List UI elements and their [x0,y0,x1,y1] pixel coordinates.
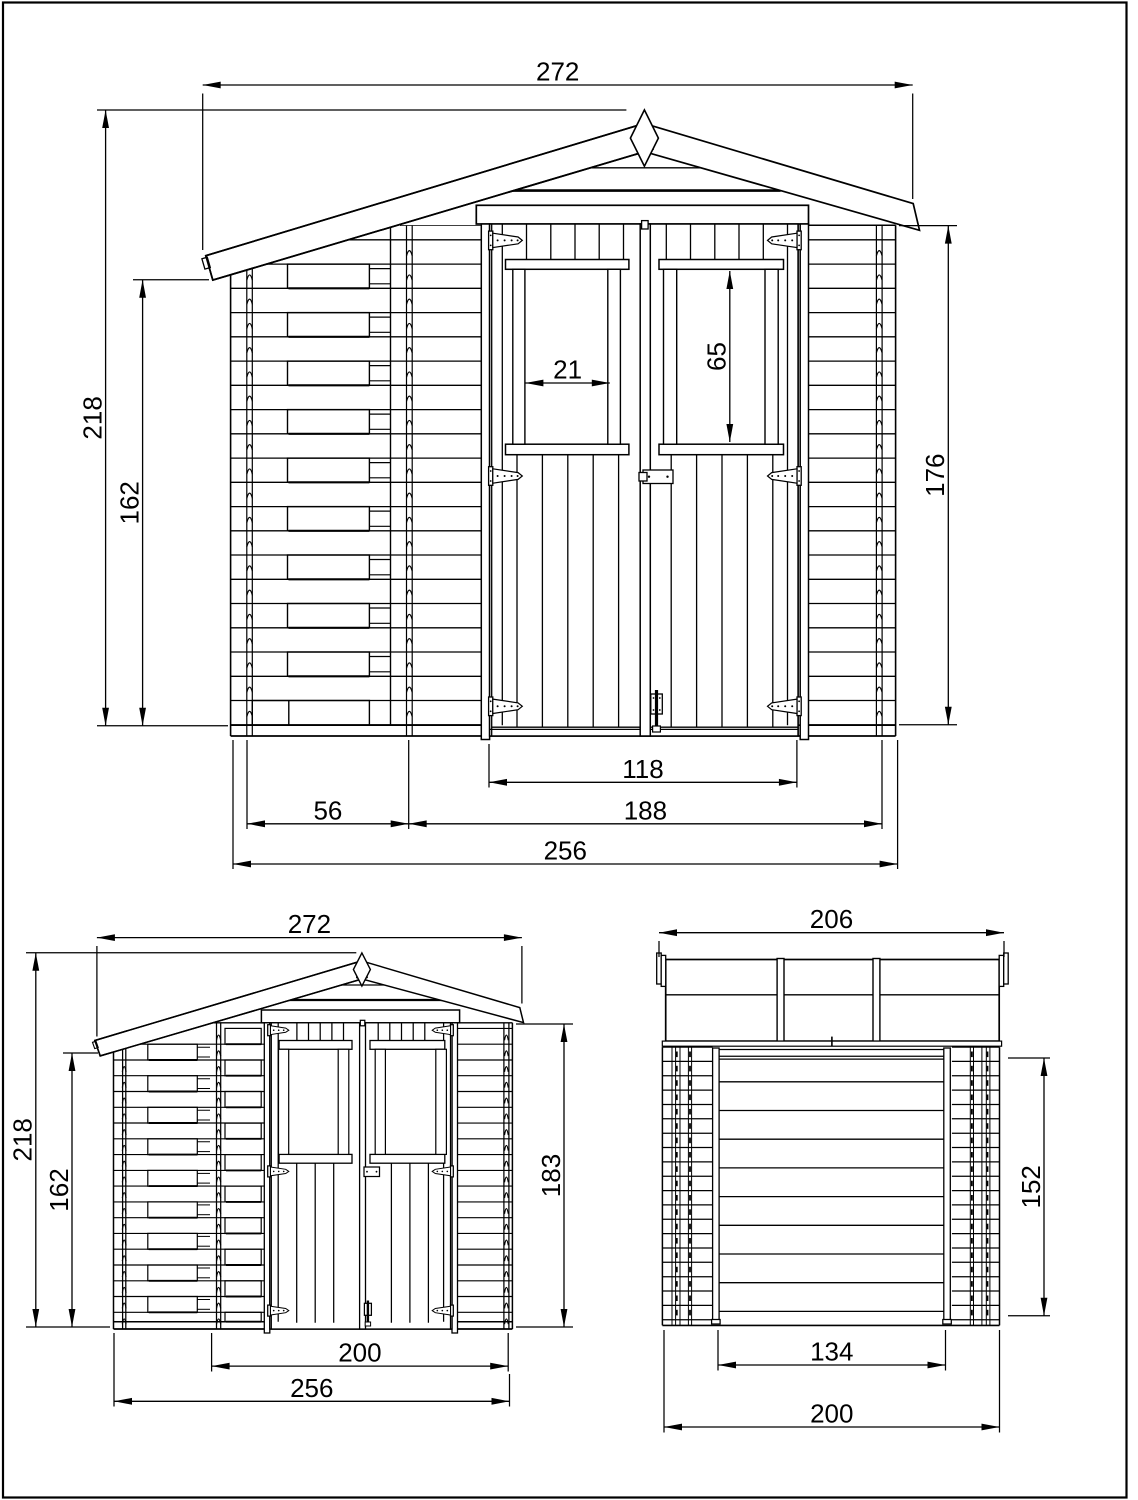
svg-text:176: 176 [920,454,950,497]
svg-text:200: 200 [338,1338,381,1368]
svg-text:134: 134 [810,1337,853,1367]
svg-text:118: 118 [622,754,663,784]
svg-text:162: 162 [44,1168,74,1211]
svg-text:218: 218 [8,1118,38,1161]
svg-text:183: 183 [536,1154,566,1197]
svg-text:256: 256 [290,1373,333,1403]
svg-text:65: 65 [702,342,732,371]
svg-text:56: 56 [313,795,342,825]
svg-text:272: 272 [536,57,579,87]
svg-text:206: 206 [810,904,853,934]
svg-text:200: 200 [810,1399,853,1429]
svg-text:218: 218 [77,396,107,439]
svg-text:188: 188 [624,795,667,825]
svg-text:152: 152 [1016,1165,1046,1208]
svg-text:256: 256 [544,836,587,866]
svg-text:162: 162 [114,481,144,524]
svg-text:21: 21 [553,355,582,385]
svg-text:272: 272 [288,909,331,939]
